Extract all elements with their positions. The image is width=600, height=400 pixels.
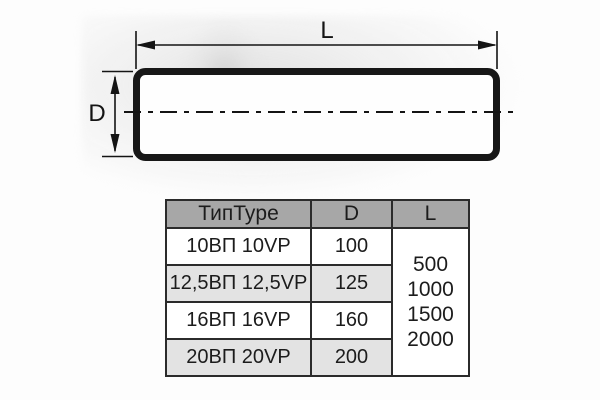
d-cell: 160 [311, 302, 392, 339]
l-values-stack: 500 1000 1500 2000 [393, 252, 468, 352]
duct-dimension-diagram: L D [0, 0, 600, 200]
header-cell-l: L [392, 200, 469, 228]
header-cell-type: ТипType [166, 200, 311, 228]
l-value: 1000 [407, 277, 454, 302]
diameter-arrow-down-icon [111, 134, 120, 153]
l-value: 500 [413, 252, 448, 277]
l-merged-cell: 500 1000 1500 2000 [392, 228, 469, 376]
l-value: 2000 [407, 327, 454, 352]
table-row: 10ВП 10VP 100 500 1000 1500 2000 [166, 228, 469, 265]
spec-table: ТипType D L 10ВП 10VP 100 500 1000 1500 … [165, 199, 470, 377]
type-cell: 10ВП 10VP [166, 228, 311, 265]
type-cell: 16ВП 16VP [166, 302, 311, 339]
duct-body-outline [137, 72, 497, 158]
type-cell: 20ВП 20VP [166, 339, 311, 376]
header-cell-d: D [311, 200, 392, 228]
type-cell: 12,5ВП 12,5VP [166, 265, 311, 302]
length-arrow-right-icon [478, 41, 497, 50]
d-cell: 125 [311, 265, 392, 302]
d-cell: 100 [311, 228, 392, 265]
l-value: 1500 [407, 302, 454, 327]
diameter-label: D [88, 100, 105, 127]
length-label: L [320, 17, 333, 44]
spec-table-header-row: ТипType D L [166, 200, 469, 228]
screenshot-root: L D ТипType D L 10ВП 10VP 100 [0, 0, 600, 400]
diameter-arrow-up-icon [111, 75, 120, 94]
d-cell: 200 [311, 339, 392, 376]
length-arrow-left-icon [136, 41, 155, 50]
